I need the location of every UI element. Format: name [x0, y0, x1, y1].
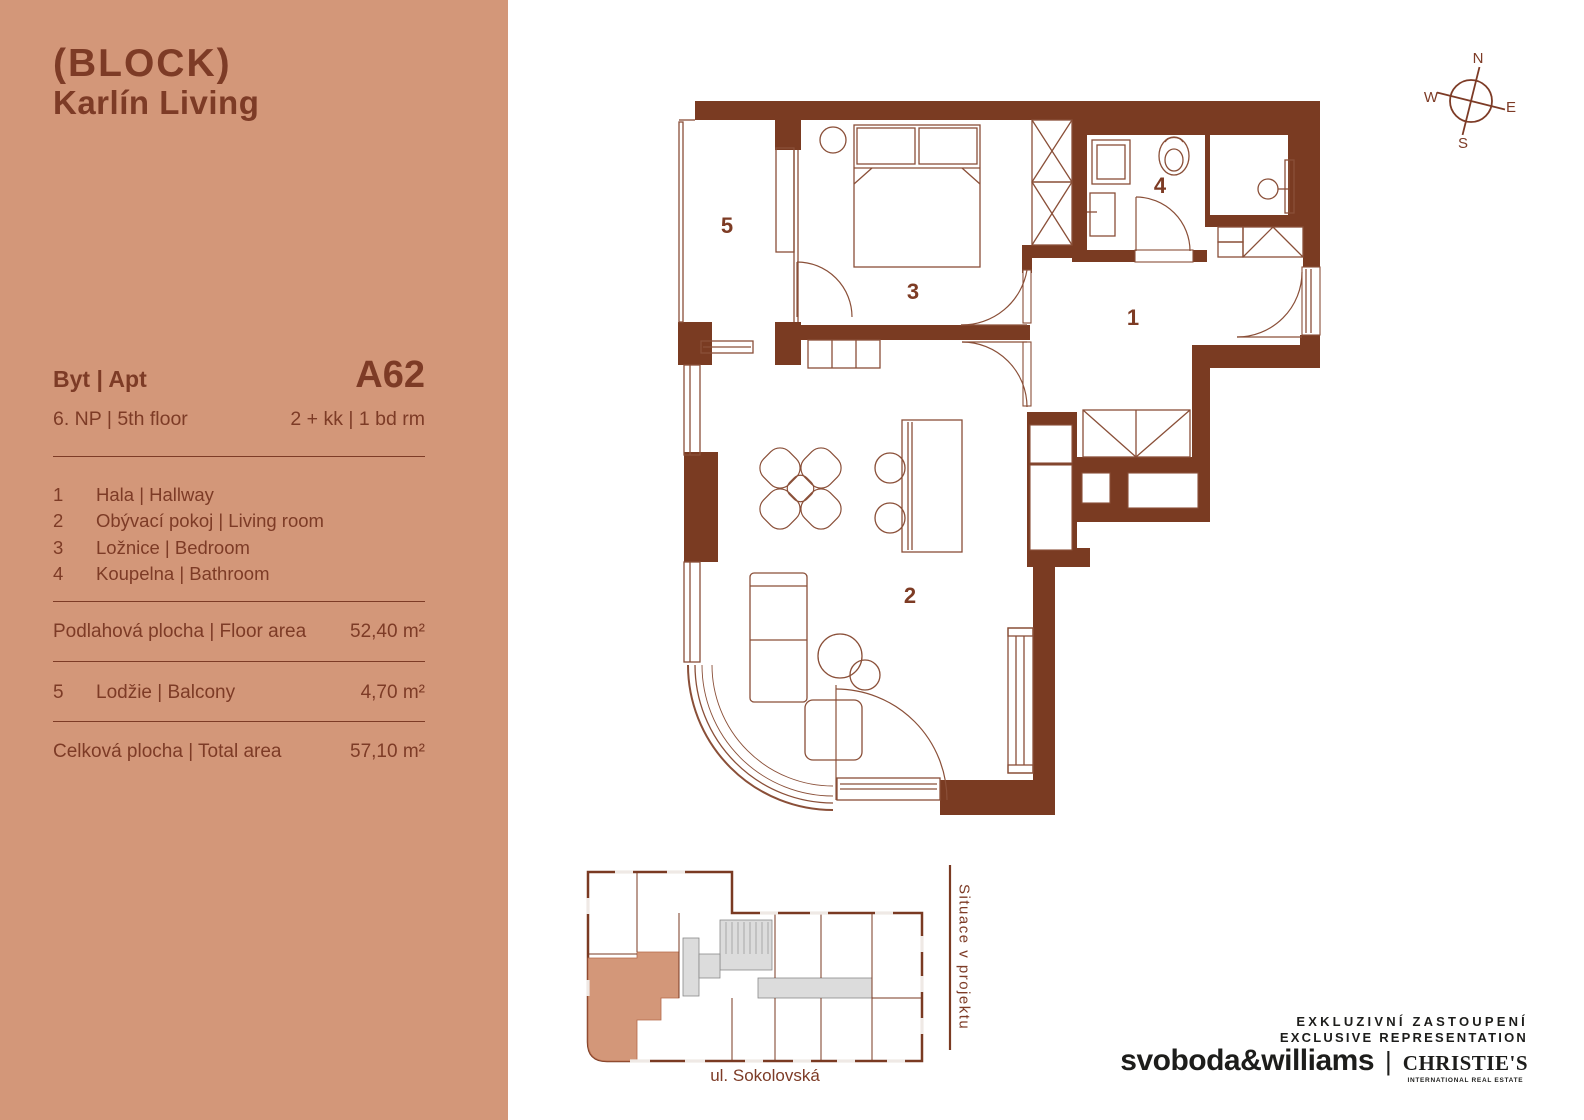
balcony-door [797, 262, 852, 317]
plan-walls [678, 101, 1320, 815]
floor-area-row: Podlahová plocha | Floor area 52,40 m² [53, 621, 425, 643]
footer-exclusive-en: EXCLUSIVE REPRESENTATION [1280, 1030, 1528, 1045]
dining-chairs [755, 443, 847, 535]
floor-layout-row: 6. NP | 5th floor 2 + kk | 1 bd rm [53, 408, 425, 431]
block-karlin-logo: (BLOCK) Karlín Living [53, 44, 259, 119]
washing-machine [1092, 140, 1130, 184]
curved-glazing [688, 665, 833, 810]
christies-subtitle: INTERNATIONAL REAL ESTATE [1407, 1077, 1523, 1084]
footer-exclusive-cz: EXKLUZIVNÍ ZASTOUPENÍ [1296, 1014, 1528, 1029]
divider-2 [53, 601, 425, 602]
floor-label: 6. NP | 5th floor [53, 408, 188, 431]
bed [854, 125, 980, 267]
hall-wardrobe-top [1218, 227, 1303, 257]
bottom-door-sill [837, 778, 940, 800]
legend-name: Hala | Hallway [96, 482, 214, 508]
sink [1258, 179, 1288, 199]
brochure-page: (BLOCK) Karlín Living Byt | Apt A62 6. N… [0, 0, 1584, 1120]
entry-door [1237, 272, 1302, 337]
legend-num: 1 [53, 482, 96, 508]
compass-s: S [1458, 135, 1468, 152]
window-left-b [684, 562, 700, 662]
legend-name: Ložnice | Bedroom [96, 535, 250, 561]
layout-label: 2 + kk | 1 bd rm [290, 408, 425, 431]
terrace-door [836, 685, 947, 800]
compass-icon [1429, 59, 1514, 144]
plan-label-hallway: 1 [1127, 305, 1139, 330]
bar-stool [875, 503, 905, 533]
unit-code: A62 [355, 354, 425, 397]
legend-item-living: 2 Obývací pokoj | Living room [53, 508, 425, 534]
divider-1 [53, 456, 425, 457]
shower-door [1087, 193, 1115, 236]
window-left-a [684, 365, 700, 455]
plan-label-balcony: 5 [721, 213, 733, 238]
balcony-label: Lodžie | Balcony [96, 682, 361, 704]
living-room-door [962, 342, 1027, 407]
sliding-panel [776, 148, 794, 252]
plan-label-living: 2 [904, 583, 916, 608]
total-area-value: 57,10 m² [350, 741, 425, 763]
legend-num: 2 [53, 508, 96, 534]
bedroom-door [961, 270, 1027, 325]
legend-name: Obývací pokoj | Living room [96, 508, 324, 534]
legend-num: 3 [53, 535, 96, 561]
compass-w: W [1424, 89, 1439, 106]
street-label: ul. Sokolovská [575, 1066, 955, 1086]
christies-name: CHRISTIE'S [1403, 1051, 1528, 1076]
room-legend: 1 Hala | Hallway 2 Obývací pokoj | Livin… [53, 482, 425, 587]
hall-wardrobe-bottom [1083, 410, 1190, 457]
toilet [1159, 137, 1189, 175]
kitchen-island [902, 420, 962, 552]
plan-label-bedroom: 3 [907, 279, 919, 304]
site-plan [575, 858, 955, 1073]
kitchen-cabinets [808, 340, 880, 368]
total-area-label: Celková plocha | Total area [53, 741, 350, 763]
compass-e: E [1506, 99, 1516, 116]
legend-name: Koupelna | Bathroom [96, 561, 269, 587]
footer-brands: svoboda&williams | CHRISTIE'S INTERNATIO… [1120, 1044, 1528, 1084]
legend-item-hallway: 1 Hala | Hallway [53, 482, 425, 508]
balcony-num: 5 [53, 682, 96, 704]
divider-4 [53, 721, 425, 722]
plan-shafts-sills [1023, 250, 1320, 550]
side-table [820, 127, 846, 153]
balcony-glazing-left [679, 122, 683, 322]
window-right-column [1008, 628, 1033, 773]
svoboda-williams-logo: svoboda&williams [1120, 1044, 1374, 1078]
christies-logo: CHRISTIE'S INTERNATIONAL REAL ESTATE [1403, 1051, 1528, 1084]
unit-label: Byt | Apt [53, 366, 147, 393]
plan-label-bathroom: 4 [1154, 173, 1167, 198]
total-area-row: Celková plocha | Total area 57,10 m² [53, 741, 425, 763]
armchair [818, 634, 862, 678]
balcony-value: 4,70 m² [361, 682, 425, 704]
legend-item-bedroom: 3 Ložnice | Bedroom [53, 535, 425, 561]
bathroom-door [1136, 197, 1190, 251]
armchair-footrest [850, 660, 880, 690]
balcony-row: 5 Lodžie | Balcony 4,70 m² [53, 682, 425, 704]
brand-divider: | [1385, 1046, 1392, 1077]
divider-3 [53, 661, 425, 662]
bedroom-wardrobe [1032, 120, 1072, 245]
site-caption: Situace v projektu [951, 865, 977, 1050]
legend-num: 4 [53, 561, 96, 587]
legend-item-bathroom: 4 Koupelna | Bathroom [53, 561, 425, 587]
unit-header: Byt | Apt A62 [53, 354, 425, 397]
compass-rose: N E S W [1408, 45, 1538, 160]
sofa [750, 573, 862, 760]
floor-area-label: Podlahová plocha | Floor area [53, 621, 350, 643]
bar-stool [875, 453, 905, 483]
floor-plan: 5 3 4 1 2 [640, 80, 1360, 840]
floor-area-value: 52,40 m² [350, 621, 425, 643]
compass-n: N [1473, 50, 1484, 67]
logo-line1: (BLOCK) [53, 44, 259, 84]
logo-line2: Karlín Living [53, 86, 259, 120]
